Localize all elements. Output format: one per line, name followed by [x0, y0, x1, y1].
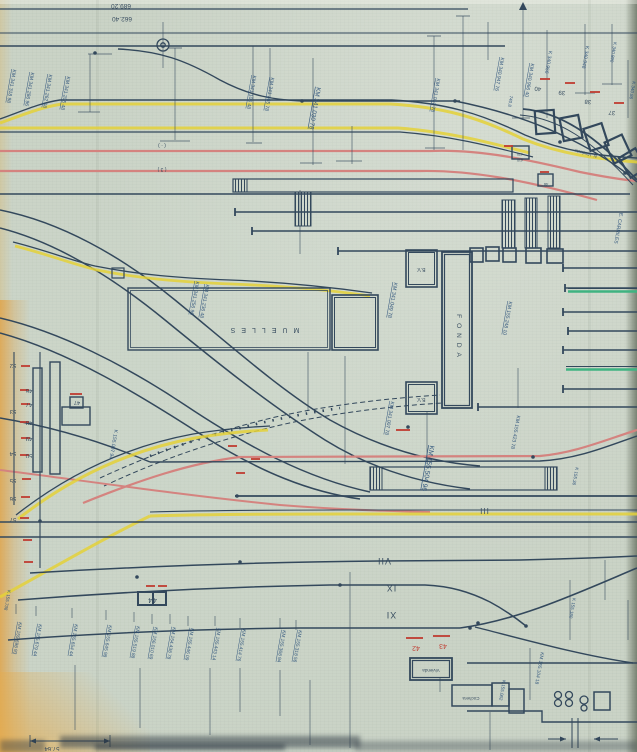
annotation-label: B.V.: [417, 396, 426, 402]
annotation-label: KM 155.504 96: [420, 445, 435, 492]
annotation-label: 42: [412, 644, 420, 651]
building-outline: [594, 692, 610, 710]
annotation-label: FONDA: [455, 314, 462, 362]
annotation-label: MUELLES: [225, 326, 300, 333]
annotation-label: KM 155.654 44: [67, 624, 79, 657]
annotation-label: 44: [147, 596, 157, 603]
ring-symbol: [566, 692, 573, 699]
annotation-label: KM 341.007 78: [383, 401, 395, 436]
scan-smudge: [95, 744, 285, 750]
platform-hatch: [502, 200, 515, 248]
platform-hatch: [370, 467, 382, 490]
switch-dot: [623, 171, 627, 175]
annotation-label: K 340.948: [580, 45, 590, 69]
track-line: [150, 514, 637, 516]
annotation-label: 57.64: [44, 745, 60, 751]
annotation-label: K 155.007 94: [107, 429, 118, 460]
annotation-label: Cochera: [462, 696, 480, 701]
platform-hatch: [295, 192, 311, 226]
annotation-label: 55: [9, 477, 16, 483]
annotation-label: E. CARRILES: [612, 212, 623, 244]
switch-dot: [93, 51, 97, 55]
annotation-label: IX: [386, 583, 397, 593]
ring-symbol: [566, 700, 573, 707]
annotation-label: 689.20: [111, 2, 131, 9]
annotation-label: K 340.890: [609, 42, 618, 64]
annotation-label: KM 341.262 08: [41, 74, 53, 109]
building-outline: [33, 368, 42, 472]
building-inner: [131, 291, 328, 348]
switch-dot: [531, 455, 535, 459]
annotation-label: KM 155.318 56: [291, 630, 303, 663]
switch-dot: [300, 99, 304, 103]
annotation-label: KM 155.368 94: [275, 630, 287, 663]
building-outline: [370, 467, 557, 490]
switch-dot: [235, 494, 239, 498]
track-line: [460, 568, 637, 628]
annotation-label: 54: [9, 450, 16, 456]
annotation-label: XI: [386, 610, 397, 620]
switch-dot: [238, 560, 242, 564]
track-line: [30, 556, 637, 573]
platform-hatch: [548, 196, 560, 248]
annotation-label: ( · ): [158, 142, 166, 148]
annotation-label: K 155.180: [568, 598, 577, 620]
switch-dot: [476, 621, 480, 625]
ring-symbol: [555, 692, 562, 699]
annotation-label: KM 155.443 14: [210, 628, 222, 661]
building-outline: [503, 248, 516, 262]
track-line: [475, 627, 633, 663]
platform-hatch: [233, 179, 247, 192]
annotation-label: KM 341.286 96: [23, 72, 35, 107]
track-line: [0, 318, 370, 492]
track-line: [13, 242, 372, 293]
annotation-label: 40: [534, 85, 542, 92]
track-line: [467, 711, 637, 722]
annotation-label: KM 155.248 10: [501, 301, 513, 336]
track-line: [118, 49, 302, 101]
annotation-label: 50: [25, 452, 32, 458]
switch-dot: [468, 626, 472, 630]
annotation-label: KM 341.085 78: [263, 77, 275, 112]
annotation-label: KM 341.318 98: [5, 69, 17, 104]
labels-layer: 689.20662.40KM 341.318 98KM 341.286 96KM…: [3, 2, 636, 751]
annotation-label: KM 155.104 18: [533, 652, 545, 685]
annotation-label: KM 341.236 48: [198, 284, 210, 319]
annotation-label: 53: [9, 408, 16, 414]
annotation-label: 38: [584, 98, 592, 105]
annotation-label: KM 155.423 78: [509, 415, 521, 450]
switch-dot: [338, 583, 342, 587]
annotation-label: KM 341.049 78: [386, 282, 398, 318]
annotation-label: KM 341.030 78: [307, 87, 321, 131]
dim-arrowhead: [560, 737, 566, 742]
scanned-track-plan: 689.20662.40KM 341.318 98KM 341.286 96KM…: [0, 0, 637, 752]
annotation-label: ( 3 ): [157, 166, 166, 172]
annotation-label: 57: [9, 516, 16, 522]
annotation-label: KM 155.446 09: [183, 628, 195, 661]
switch-dot: [453, 99, 457, 103]
platform-hatch: [525, 198, 537, 248]
annotation-label: 470: [517, 152, 523, 156]
annotation-label: 56: [9, 495, 16, 501]
switch-dot: [406, 425, 410, 429]
annotation-label: 46: [25, 387, 32, 393]
platform-hatch: [545, 467, 557, 490]
track-line: [0, 516, 150, 597]
annotation-label: KM 340.947 76: [493, 57, 505, 92]
building-outline: [50, 362, 60, 474]
annotation-label: 39: [558, 89, 566, 96]
building-inner: [335, 298, 376, 348]
dim-arrowhead: [594, 737, 600, 742]
annotation-label: KM 155.519 88: [129, 626, 141, 659]
annotation-label: 49: [25, 435, 32, 441]
north-arrowhead: [519, 2, 527, 10]
building-outline: [509, 689, 524, 713]
annotation-label: 47: [25, 401, 32, 407]
building-outline: [332, 295, 378, 350]
annotation-label: 662.40: [112, 15, 132, 22]
tracks-layer: [0, 9, 637, 722]
viaduct-span: [583, 123, 608, 151]
annotation-label: KM 341.017 78: [429, 78, 441, 113]
building-outline: [128, 288, 330, 350]
annotation-label: K 155.36: [571, 467, 579, 486]
building-outline: [486, 247, 499, 261]
viaduct-span: [559, 115, 582, 141]
building-outline: [452, 685, 492, 706]
annotation-label: 48: [25, 419, 32, 425]
annotation-label: 47: [74, 399, 80, 405]
annotation-label: B.V.: [417, 266, 426, 272]
marks-layer: [0, 2, 637, 752]
annotation-label: 43: [439, 642, 447, 649]
track-line: [16, 426, 270, 515]
switch-dot: [524, 624, 528, 628]
ring-symbol: [580, 696, 588, 704]
structures-layer: [33, 110, 637, 713]
annotation-label: 37: [608, 109, 616, 116]
switch-dot: [135, 575, 139, 579]
switch-dot: [38, 519, 42, 523]
annotation-label: KM 340.966 40: [523, 63, 535, 98]
track-line: [0, 151, 637, 181]
annotation-label: K 340.956: [543, 50, 553, 74]
annotation-label: KM 341.256 96: [188, 281, 200, 316]
annotation-label: KM 155.679 44: [31, 624, 43, 657]
building-outline: [62, 407, 90, 425]
annotation-label: 46: [543, 182, 548, 187]
scan-smudge: [355, 741, 637, 751]
annotation-label: VII: [377, 556, 391, 566]
annotation-label: Vivienda: [422, 668, 440, 673]
annotation-label: 740.8: [507, 95, 514, 107]
track-line: [18, 585, 526, 626]
ring-symbol: [581, 705, 587, 711]
annotation-label: 410: [517, 158, 523, 162]
scan-smudge: [0, 740, 45, 752]
yard-plan-drawing: 689.20662.40KM 341.318 98KM 341.286 96KM…: [0, 0, 637, 752]
annotation-label: III: [479, 506, 489, 515]
annotation-label: 52: [9, 362, 16, 368]
annotation-label: K 340.86: [628, 81, 636, 100]
annotation-label: KM 155.414 76: [235, 629, 247, 662]
switch-dot: [558, 140, 562, 144]
annotation-label: KM 155.645 98: [101, 625, 113, 658]
building-outline: [233, 179, 513, 192]
ring-symbol: [555, 700, 562, 707]
